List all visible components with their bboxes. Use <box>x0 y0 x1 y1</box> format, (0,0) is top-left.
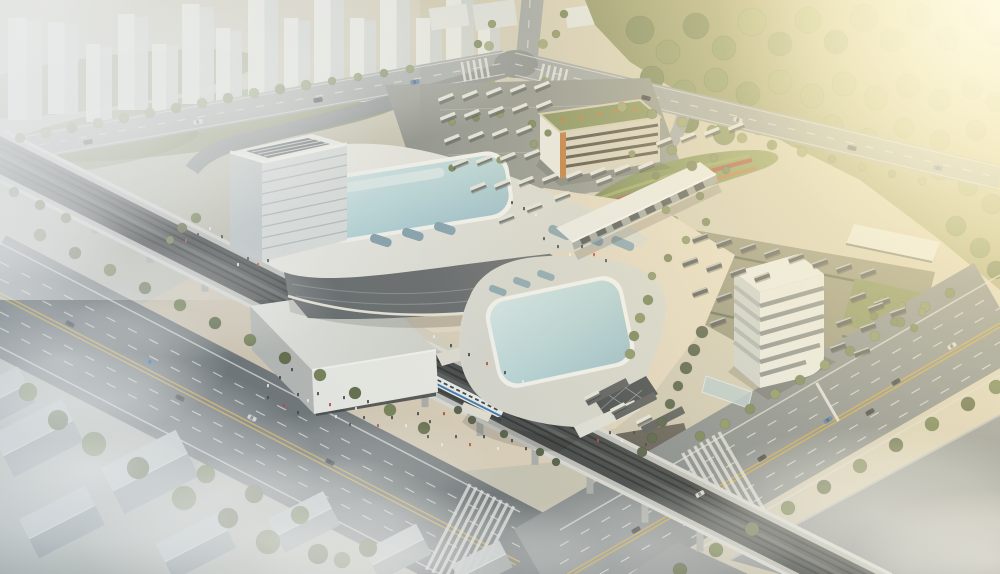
sun-glow-core <box>0 0 1000 574</box>
aerial-rendering <box>0 0 1000 574</box>
atmosphere <box>0 0 1000 574</box>
rendering-canvas <box>0 0 1000 574</box>
